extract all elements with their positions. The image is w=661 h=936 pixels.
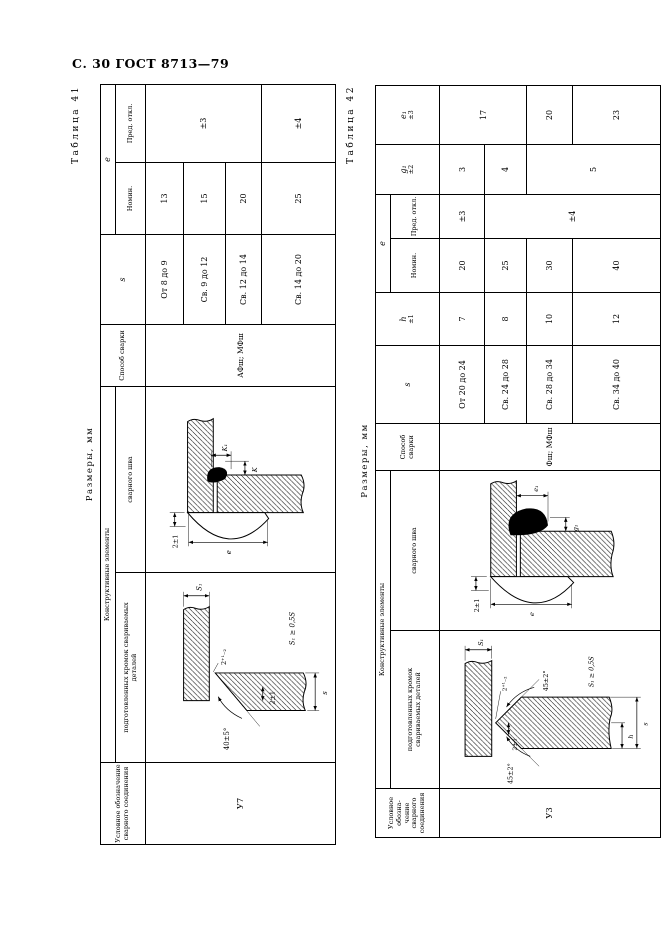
col-header-h: h ±1: [376, 293, 440, 346]
e-nominal-cell: 40: [573, 239, 661, 293]
e-nominal-cell: 25: [262, 163, 336, 235]
e-nominal-cell: 15: [184, 163, 226, 235]
col-header-e: e: [376, 194, 391, 292]
dim-label-bevel-angle-left: 45±2°: [506, 764, 514, 785]
e-deviation-cell: ±3: [146, 84, 262, 162]
e-deviation-cell: ±4: [262, 84, 336, 162]
edge-preparation-drawing-u7: S₁ 40±5° 2⁺¹₋₂ 2±1 s S₁ ≥: [147, 575, 330, 761]
h-value-cell: 10: [527, 293, 573, 346]
s-range-cell: От 20 до 24: [440, 346, 485, 424]
s-range-cell: Св. 28 до 34: [527, 346, 573, 424]
col-header-s: s: [101, 235, 146, 325]
dim-label-k: K: [251, 467, 259, 474]
weld-seam-drawing-u7: e K₁ K 2±1: [147, 389, 330, 571]
col-header-e1: e₁ ±3: [376, 85, 440, 144]
dim-label-bevel-angle: 40±5°: [223, 728, 231, 750]
dim-label-s: s: [642, 722, 650, 726]
e-nominal-cell: 25: [485, 239, 527, 293]
col-header-nominal: Номин.: [116, 163, 146, 235]
dim-label-s1: S₁: [195, 584, 203, 592]
s-range-cell: Св. 34 до 40: [573, 346, 661, 424]
s-range-cell: Св. 9 до 12: [184, 235, 226, 325]
s-range-cell: Св. 24 до 28: [485, 346, 527, 424]
col-header-e: e: [101, 84, 116, 234]
col-header-weld-seam: сварного шва: [391, 471, 440, 631]
dim-label-gap: 2±1: [473, 599, 481, 613]
col-header-prepared-edges: подготовленных кромок свариваемых детале…: [391, 631, 440, 789]
s-range-cell: От 8 до 9: [146, 235, 184, 325]
dim-label-bevel-angle-right: 45±2°: [542, 671, 550, 692]
dim-label-e1: e₁: [532, 486, 540, 492]
table42-sizes-note: Размеры, мм: [358, 83, 372, 838]
e-nominal-cell: 13: [146, 163, 184, 235]
designation-cell: У3: [440, 789, 661, 838]
table41-rotated-block: Таблица 41 Размеры, мм Условное обозначе…: [70, 83, 346, 845]
dim-label-root-face: 2±1: [512, 738, 518, 750]
edge-preparation-diagram: S₁ 40±5° 2⁺¹₋₂ 2±1 s S₁ ≥: [146, 573, 336, 763]
dim-label-gap: 2±1: [172, 535, 180, 549]
col-header-deviation: Пред. откл.: [391, 194, 440, 238]
table-41: Условное обозначение сварного соединения…: [100, 84, 336, 845]
e-deviation-cell: ±3: [440, 194, 485, 238]
table41-caption: Таблица 41: [70, 83, 83, 845]
dim-label-s1: S₁: [477, 639, 485, 646]
welding-method-cell: АФш; МФш: [146, 325, 336, 387]
page-header: С. 30 ГОСТ 8713—79: [72, 56, 229, 71]
col-header-weld-seam: сварного шва: [116, 387, 146, 573]
dim-label-g1: g₁: [572, 525, 580, 532]
dim-label-e: e: [225, 551, 233, 555]
col-header-constructive-elements: Конструктивные элементы: [376, 471, 391, 789]
col-header-designation: Условное обозначение сварного соединения: [101, 763, 146, 845]
table41-sizes-note: Размеры, мм: [83, 83, 97, 845]
col-header-designation: Условное обозна- чение сварного соединен…: [376, 789, 440, 838]
e-nominal-cell: 20: [440, 239, 485, 293]
weld-seam-diagram: e K₁ K 2±1: [146, 387, 336, 573]
dim-label-gap: 2⁺¹₋₂: [220, 649, 228, 665]
g1-value-cell: 5: [527, 144, 661, 194]
s-range-cell: Св. 14 до 20: [262, 235, 336, 325]
designation-cell: У7: [146, 763, 336, 845]
col-header-constructive-elements: Конструктивные элементы: [101, 387, 116, 763]
e1-value-cell: 23: [573, 85, 661, 144]
col-header-welding-method: Способ сварки: [376, 424, 440, 471]
e-nominal-cell: 20: [226, 163, 262, 235]
col-header-prepared-edges: подготовленных кромок свариваемых детале…: [116, 573, 146, 763]
welding-method-cell: Фш; МФш: [440, 424, 661, 471]
dim-label-e: e: [528, 613, 536, 617]
dim-label-h: h: [627, 735, 635, 739]
col-header-welding-method: Способ сварки: [101, 325, 146, 387]
g1-value-cell: 4: [485, 144, 527, 194]
document-page: С. 30 ГОСТ 8713—79 Таблица 41 Размеры, м…: [0, 0, 661, 936]
g1-value-cell: 3: [440, 144, 485, 194]
e-nominal-cell: 30: [527, 239, 573, 293]
h-value-cell: 8: [485, 293, 527, 346]
e-deviation-cell: ±4: [485, 194, 661, 238]
table42-rotated-block: Таблица 42 Размеры, мм Условное обозна- …: [345, 83, 661, 838]
note-s1-condition: S₁ ≥ 0,5S: [288, 612, 296, 646]
col-header-deviation: Пред. откл.: [116, 84, 146, 162]
h-value-cell: 12: [573, 293, 661, 346]
note-s1-condition: S₁ ≥ 0,5S: [587, 656, 595, 688]
e1-value-cell: 20: [527, 85, 573, 144]
weld-seam-drawing-u3: e e₁ g₁ 2±1: [442, 473, 654, 629]
h-value-cell: 7: [440, 293, 485, 346]
dim-label-root-face: 2±1: [269, 692, 277, 706]
table-42: Условное обозна- чение сварного соединен…: [375, 85, 661, 838]
dim-label-k1: K₁: [221, 444, 229, 452]
edge-preparation-drawing-u3: S₁ 45±2° 45±2° 2⁺¹₋₂ 2±1: [442, 633, 654, 787]
col-header-s: s: [376, 346, 440, 424]
col-header-nominal: Номин.: [391, 239, 440, 293]
table42-caption: Таблица 42: [345, 83, 358, 838]
s-range-cell: Св. 12 до 14: [226, 235, 262, 325]
edge-preparation-diagram: S₁ 45±2° 45±2° 2⁺¹₋₂ 2±1: [440, 631, 661, 789]
e1-value-cell: 17: [440, 85, 527, 144]
dim-label-s: s: [321, 691, 329, 695]
dim-label-gap: 2⁺¹₋₂: [502, 677, 509, 692]
weld-seam-diagram: e e₁ g₁ 2±1: [440, 471, 661, 631]
col-header-g1: g₁ ±2: [376, 144, 440, 194]
